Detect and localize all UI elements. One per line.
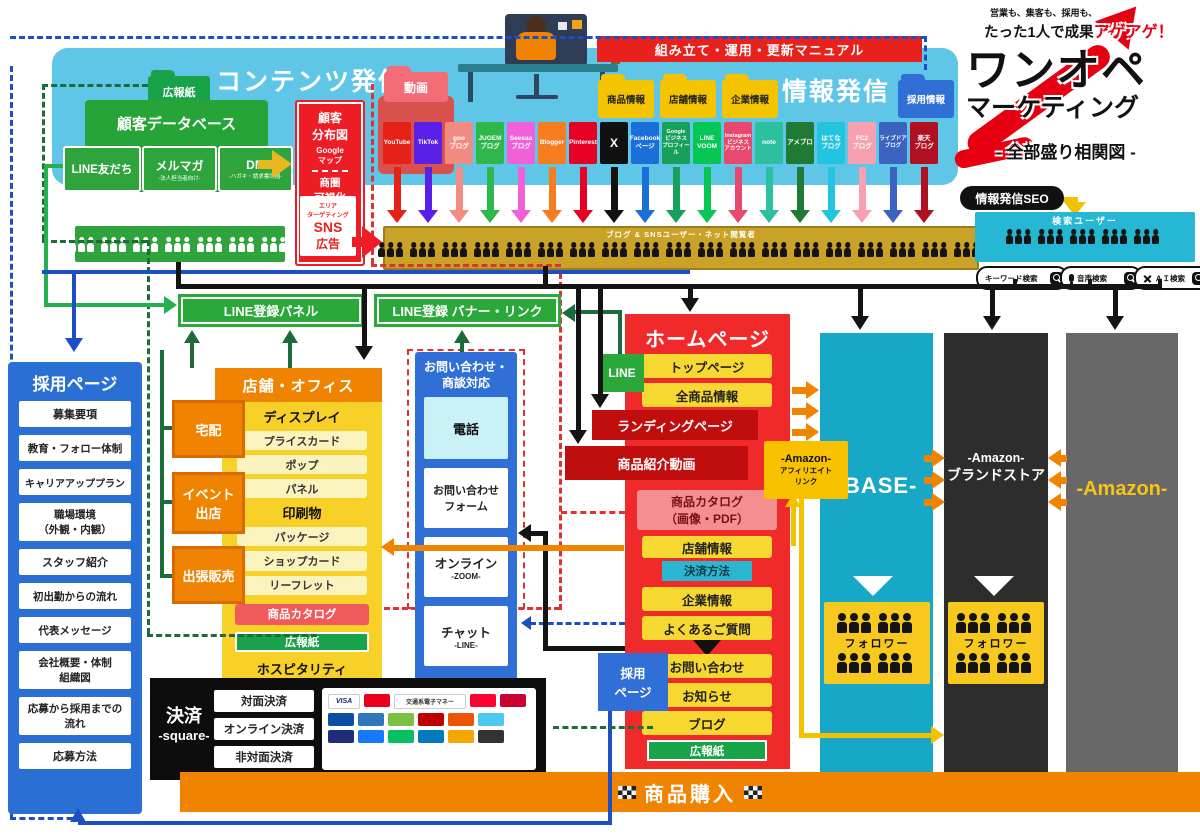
connector-orange <box>1059 499 1067 506</box>
connector-orange-arrowhead <box>381 538 394 556</box>
info-broadcast-title: 情報発信 <box>782 72 890 108</box>
store-catalog-label: 商品カタログ <box>268 606 337 622</box>
brandstore-label: ブランドストア <box>947 465 1045 485</box>
person-icon <box>387 242 394 257</box>
contact-title: お問い合わせ・ 商談対応 <box>415 360 517 391</box>
payment-method: オンライン決済 <box>214 718 314 740</box>
recruit-item-label: 教育・フォロー体制 <box>28 441 123 456</box>
tile-arrow <box>414 167 442 223</box>
tile-label: Google ビジネス プロフィール <box>662 129 690 157</box>
connector-black-arrowhead <box>1106 316 1124 330</box>
connector-darkgreen-arrowhead <box>184 330 200 343</box>
connector-black-arrowhead <box>983 316 1001 330</box>
desk-icon <box>458 64 618 72</box>
person-icon <box>954 242 961 257</box>
person-icon <box>419 242 426 257</box>
tile-arrow <box>538 167 566 223</box>
tile-arrow <box>879 167 907 223</box>
person-icon <box>837 653 847 673</box>
google-pay-logo <box>478 730 504 743</box>
person-icon <box>87 237 94 252</box>
homepage-item-label: 決済方法 <box>684 563 730 579</box>
brand-subtitle: - 全部盛り相関図 - <box>996 138 1136 163</box>
line-register-panel-bar: LINE登録パネル <box>178 294 364 327</box>
visa-label: VISA <box>336 698 352 705</box>
person-icon <box>197 237 204 252</box>
recruit-item-label: 応募から採用までの 流れ <box>28 701 123 731</box>
contact-chat-sub: -LINE- <box>454 641 478 650</box>
connector-blue <box>42 270 690 274</box>
person-icon <box>579 242 586 257</box>
checkered-flag-icon <box>744 786 762 799</box>
contact-form-box: お問い合わせ フォーム <box>424 468 508 528</box>
recruit-item-label: 会社概要・体制 組織図 <box>38 655 112 685</box>
sns-tile-google-business: Google ビジネス プロフィール <box>662 122 690 164</box>
ai-icon <box>1143 274 1152 283</box>
tile-arrow <box>786 167 814 223</box>
payment-method: 対面決済 <box>214 690 314 712</box>
person-icon <box>110 237 117 252</box>
connector-darkgreen <box>288 342 292 368</box>
recruit-item-label: 職場環境 （外観・内観） <box>38 507 112 537</box>
connector-black <box>858 284 863 318</box>
person-icon <box>878 653 888 673</box>
map-box-line: Google <box>297 146 363 155</box>
line-chip-label: LINE <box>608 366 635 380</box>
person-icon <box>890 242 897 257</box>
connector-black <box>530 531 545 536</box>
paypay-logo <box>470 694 496 707</box>
homepage-item-label: 商品紹介動画 <box>617 454 695 473</box>
tile-label: Instagram ビジネス アカウント <box>724 133 752 154</box>
connector-yellow-arrowhead <box>272 150 292 178</box>
tile-arrow <box>476 167 504 223</box>
person-icon <box>451 242 458 257</box>
amazon-column: -Amazon- <box>1066 333 1178 773</box>
person-icon <box>1134 229 1141 244</box>
person-icon <box>474 242 481 257</box>
person-icon <box>684 242 691 257</box>
tile-arrow <box>600 167 628 223</box>
connector-black-arrowhead <box>518 524 531 542</box>
person-icon <box>716 242 723 257</box>
connector-black-arrowhead <box>681 298 699 312</box>
outer-border-dashed <box>924 36 927 70</box>
tile-label: goo ブログ <box>449 135 469 151</box>
homepage-title: ホームページ <box>625 323 790 352</box>
connector-blue-arrowhead <box>65 338 83 352</box>
person-icon <box>835 242 842 257</box>
recruit-item: 応募方法 <box>19 743 131 769</box>
sns-tile-jugem-blog: JUGEM ブログ <box>476 122 504 164</box>
person-icon <box>133 237 140 252</box>
line-chip: LINE <box>600 354 644 392</box>
store-item: プライスカード <box>237 431 367 450</box>
sns-tile-fc2-blog: FC2 ブログ <box>848 122 876 164</box>
koho-dashed <box>147 240 150 634</box>
person-icon <box>956 613 966 633</box>
base-follower-box: フォロワー <box>824 602 930 684</box>
homepage-item-payment-methods: 決済方法 <box>662 561 752 581</box>
person-icon <box>1015 229 1022 244</box>
onepe-marketing-diagram: コンテンツ発信 情報発信 広報紙 商品情報 店舗情報 企業情報 採用情報 組み立… <box>0 0 1200 835</box>
recruit-item: キャリアアッププラン <box>19 469 131 495</box>
person-icon <box>1006 229 1013 244</box>
rakuten-pay-logo <box>418 713 444 726</box>
recruit-chip-label: 採用 ページ <box>614 663 651 701</box>
db-arrowhead <box>234 208 262 224</box>
person-icon <box>428 242 435 257</box>
connector-orange-arrowhead <box>932 449 945 467</box>
purchase-bar: 商品購入 <box>180 772 1200 812</box>
person-icon <box>861 613 871 633</box>
sns-tile-ameblo: アメブロ <box>786 122 814 164</box>
person-icon <box>602 242 609 257</box>
person-icon <box>261 237 268 252</box>
tile-arrow <box>848 167 876 223</box>
recruit-chip: 採用 ページ <box>598 653 668 711</box>
store-section-title: 印刷物 <box>282 503 321 522</box>
person-icon <box>666 242 673 257</box>
map-box-line: 商圏 <box>297 175 363 190</box>
tile-label: Blogger <box>540 139 565 147</box>
recruit-info-folder: 採用情報 <box>898 80 954 118</box>
connector-green <box>44 164 48 306</box>
person-icon <box>1024 229 1031 244</box>
manual-bar-label: 組み立て・運用・更新マニュアル <box>655 40 865 59</box>
person-icon <box>902 653 912 673</box>
person-icon <box>968 653 978 673</box>
sns-tiles-row: YouTube TikTok goo ブログ JUGEM ブログ Seesaa … <box>383 122 938 164</box>
transit-emoney-logo: 交通系電子マネー <box>394 694 466 709</box>
store-section-title: ディスプレイ <box>263 407 340 426</box>
connector-black <box>543 266 548 286</box>
connector-black <box>576 284 581 432</box>
koho-dashed <box>42 84 148 87</box>
person-icon <box>238 237 245 252</box>
person-icon <box>899 242 906 257</box>
sns-tile-note: note <box>755 122 783 164</box>
koho-dashed <box>147 634 317 637</box>
person-icon <box>442 242 449 257</box>
person-icon <box>867 242 874 257</box>
db-item-mailmag: メルマガ -法人担当者向け- <box>142 146 217 192</box>
users-people-row <box>385 242 977 257</box>
sns-tile-x: X <box>600 122 628 164</box>
person-icon <box>410 242 417 257</box>
recruit-item: 応募から採用までの 流れ <box>19 697 131 735</box>
store-footer-label: ホスピタリティ <box>257 659 347 678</box>
person-icon <box>1009 613 1019 633</box>
red-dashed <box>371 264 561 267</box>
store-item-label: プライスカード <box>264 433 341 449</box>
au-pay-logo <box>448 713 474 726</box>
connector-black-arrowhead <box>591 394 609 408</box>
connector-green-arrowhead <box>164 296 177 314</box>
payment-logos-panel: VISA 交通系電子マネー <box>322 688 536 770</box>
connector-darkgreen-arrowhead <box>282 330 298 343</box>
amazon-affiliate-box: -Amazon- アフィリエイト リンク <box>764 441 848 499</box>
homepage-item-faq: よくあるご質問 <box>642 616 772 640</box>
microphone-icon <box>1069 274 1074 282</box>
store-info-folder: 店舗情報 <box>660 80 716 118</box>
connector-black <box>990 284 995 318</box>
connector-yellow-arrowhead <box>931 726 944 744</box>
follower-people-row <box>956 613 1036 633</box>
connector-black <box>1013 279 1017 285</box>
person-icon <box>1088 229 1095 244</box>
db-item-sub: -法人担当者向け- <box>158 174 200 182</box>
person-icon <box>675 242 682 257</box>
content-broadcast-title: コンテンツ発信 <box>216 62 405 98</box>
purchase-bar-label: 商品購入 <box>644 778 736 807</box>
tile-label: Seesaa ブログ <box>510 135 532 151</box>
sns-tile-youtube: YouTube <box>383 122 411 164</box>
homepage-item-label: 広報紙 <box>690 743 725 759</box>
recruit-item-label: 初出勤からの流れ <box>33 589 117 604</box>
person-icon <box>771 242 778 257</box>
sns-tile-seesaa-blog: Seesaa ブログ <box>507 122 535 164</box>
person-icon <box>174 237 181 252</box>
payment-title: 決済 <box>166 702 202 728</box>
tile-arrow <box>383 167 411 223</box>
tile-label: LINE VOOM <box>697 135 717 151</box>
store-item: ショップカード <box>237 551 367 570</box>
person-icon <box>849 613 859 633</box>
recruit-item-label: キャリアアッププラン <box>25 475 125 490</box>
homepage-item-label: お問い合わせ <box>669 657 744 676</box>
connector-yellow <box>799 499 804 737</box>
person-icon <box>547 242 554 257</box>
homepage-item-label: 企業情報 <box>682 590 732 609</box>
diners-logo <box>418 730 444 743</box>
seo-pill: 情報発信SEO <box>960 186 1064 210</box>
person-icon <box>1070 229 1077 244</box>
person-icon <box>890 613 900 633</box>
amazon-brandstore-column: -Amazon- ブランドストア フォロワー <box>944 333 1048 773</box>
base-column: -BASE- フォロワー <box>820 333 933 775</box>
sns-tile-hatena-blog: はてな ブログ <box>817 122 845 164</box>
d-barai-logo <box>500 694 526 707</box>
search-icon <box>1192 272 1200 285</box>
follower-label: フォロワー <box>964 635 1029 651</box>
homepage-item-top-page: トップページ <box>642 354 772 378</box>
person-icon <box>524 242 531 257</box>
follower-people-row <box>837 613 917 633</box>
person-icon <box>183 237 190 252</box>
sns-tile-rakuten-blog: 楽天 ブログ <box>910 122 938 164</box>
person-icon <box>151 237 158 252</box>
person-icon <box>1038 229 1045 244</box>
person-icon <box>1111 229 1118 244</box>
person-icon <box>812 242 819 257</box>
desk-leg-icon <box>468 72 473 102</box>
person-icon <box>826 242 833 257</box>
down-triangle-icon <box>974 576 1014 596</box>
recruit-page-column: 採用ページ 募集要項 教育・フォロー体制 キャリアアッププラン 職場環境 （外観… <box>8 362 142 814</box>
store-office-title: 店舗・オフィス <box>243 375 355 396</box>
connector-black-arrowhead <box>355 346 373 360</box>
person-icon <box>247 237 254 252</box>
person-icon <box>643 242 650 257</box>
connector-black <box>543 646 625 651</box>
person-icon <box>908 242 915 257</box>
person-icon <box>492 242 499 257</box>
koho-dashed <box>553 726 653 729</box>
store-item: ポップ <box>237 455 367 474</box>
payment-subtitle: -square- <box>158 728 209 743</box>
payment-method-label: 非対面決済 <box>235 749 293 765</box>
person-icon <box>1021 653 1031 673</box>
store-item-label: パッケージ <box>275 529 330 545</box>
person-icon <box>588 242 595 257</box>
person-icon <box>849 653 859 673</box>
connector-black <box>1088 279 1092 285</box>
tile-label: TikTok <box>418 139 438 147</box>
person-icon <box>1143 229 1150 244</box>
line-register-banner-bar: LINE登録 バナー・リンク <box>374 294 561 327</box>
person-icon <box>980 653 990 673</box>
person-icon <box>1047 229 1054 244</box>
folder-label: 採用情報 <box>907 92 945 106</box>
homepage-item-label: よくあるご質問 <box>663 619 751 638</box>
person-icon <box>620 242 627 257</box>
person-icon <box>1021 613 1031 633</box>
db-item-label: メルマガ <box>155 157 203 174</box>
tile-label: アメブロ <box>787 139 813 147</box>
customer-db-title: 顧客データベース <box>85 108 268 138</box>
person-icon <box>837 613 847 633</box>
sns-ad-line: 広告 <box>316 235 340 252</box>
person-icon <box>931 242 938 257</box>
recruit-item: 初出勤からの流れ <box>19 583 131 609</box>
person-icon <box>101 237 108 252</box>
tile-arrow <box>724 167 752 223</box>
store-item: パネル <box>237 479 367 498</box>
map-box-line: 分布図 <box>297 126 363 143</box>
contact-online-label: オンライン <box>435 553 498 572</box>
homepage-item-koho: 広報紙 <box>647 740 767 761</box>
contact-online-sub: -ZOOM- <box>451 572 480 581</box>
connector-black <box>598 284 603 394</box>
tile-arrow <box>507 167 535 223</box>
person-icon <box>1056 229 1063 244</box>
homepage-item-label: ブログ <box>688 714 726 733</box>
tile-arrow <box>817 167 845 223</box>
tile-label: はてな ブログ <box>821 135 841 151</box>
recruit-item-label: スタッフ紹介 <box>42 554 108 570</box>
brandstore-label: -Amazon- <box>968 451 1025 465</box>
contact-phone-label: 電話 <box>453 419 479 438</box>
divider <box>312 170 348 172</box>
recruit-item: 代表メッセージ <box>19 617 131 643</box>
affiliate-line: -Amazon- <box>781 453 831 465</box>
person-icon <box>1009 653 1019 673</box>
payment-method-label: 対面決済 <box>241 693 287 709</box>
person-icon <box>902 613 912 633</box>
visa-logo: VISA <box>328 694 360 709</box>
transit-label: 交通系電子マネー <box>406 697 454 706</box>
homepage-item-product-video: 商品紹介動画 <box>565 446 748 480</box>
db-arrowhead <box>158 208 186 224</box>
person-icon <box>968 613 978 633</box>
tile-label: Pinterest <box>569 139 597 147</box>
sns-tile-facebook: Facebook ページ <box>631 122 659 164</box>
homepage-item-label: お知らせ <box>682 686 732 705</box>
person-icon <box>707 242 714 257</box>
person-icon <box>652 242 659 257</box>
person-icon <box>780 242 787 257</box>
manual-bar: 組み立て・運用・更新マニュアル <box>597 36 922 62</box>
contact-chat-box: チャット -LINE- <box>424 606 508 666</box>
tile-label: X <box>610 136 618 151</box>
connector-orange-arrowhead <box>932 471 945 489</box>
sns-arrows-row <box>383 167 938 223</box>
sns-tile-instagram-business: Instagram ビジネス アカウント <box>724 122 752 164</box>
homepage-item-label: 商品カタログ （画像・PDF） <box>665 493 749 527</box>
person-icon <box>483 242 490 257</box>
person-icon <box>762 242 769 257</box>
map-box-line: 顧客 <box>297 109 363 126</box>
company-info-folder: 企業情報 <box>722 80 778 118</box>
person-icon <box>69 237 76 252</box>
person-icon <box>748 242 755 257</box>
koho-dashed <box>42 240 147 243</box>
connector-black <box>1158 279 1162 285</box>
person-icon <box>215 237 222 252</box>
affiliate-line: アフィリエイト <box>780 465 832 476</box>
person-icon <box>844 242 851 257</box>
tile-arrow <box>569 167 597 223</box>
koho-folder-label: 広報紙 <box>163 84 196 100</box>
outer-border-dashed <box>10 36 926 39</box>
tile-label: ライブドア ブログ <box>879 136 907 150</box>
search-users-title: 検索ユーザー <box>975 214 1195 227</box>
id-logo <box>388 713 414 726</box>
tile-arrow <box>445 167 473 223</box>
homepage-item-company-info: 企業情報 <box>642 587 772 611</box>
tile-label: FC2 ブログ <box>852 135 872 151</box>
amazon-label: -Amazon- <box>1066 478 1178 501</box>
brand-title-line2: マーケティング <box>966 88 1139 124</box>
connector-orange-arrowhead <box>806 423 819 441</box>
person-icon <box>890 653 900 673</box>
merpay-logo <box>478 713 504 726</box>
wechat-pay-logo <box>388 730 414 743</box>
connector-darkgreen <box>160 350 164 578</box>
tile-label: Facebook ページ <box>630 135 660 151</box>
connector-yellow <box>799 733 933 738</box>
person-icon <box>396 242 403 257</box>
store-item-label: ショップカード <box>264 553 341 569</box>
sns-ad-box: エリア ターゲティング SNS 広告 <box>300 196 356 256</box>
connector-black-arrowhead <box>569 430 587 444</box>
homepage-item-label: ランディングページ <box>617 416 733 435</box>
connector-blue <box>72 270 76 340</box>
recruit-item-label: 募集要項 <box>53 406 97 422</box>
connector-blue <box>78 821 612 825</box>
connector-blue-arrowhead <box>70 808 86 822</box>
seo-pill-label: 情報発信SEO <box>975 190 1048 207</box>
person-icon <box>1102 229 1109 244</box>
connector-darkgreen <box>460 342 464 352</box>
side-box-event: イベント 出店 <box>172 472 245 534</box>
pill-label: 音声検索 <box>1077 273 1107 284</box>
payment-method-label: オンライン決済 <box>224 721 305 737</box>
connector-darkgreen-arrowhead <box>454 330 470 343</box>
connector-black <box>1113 284 1118 318</box>
connector-orange <box>1059 455 1067 462</box>
